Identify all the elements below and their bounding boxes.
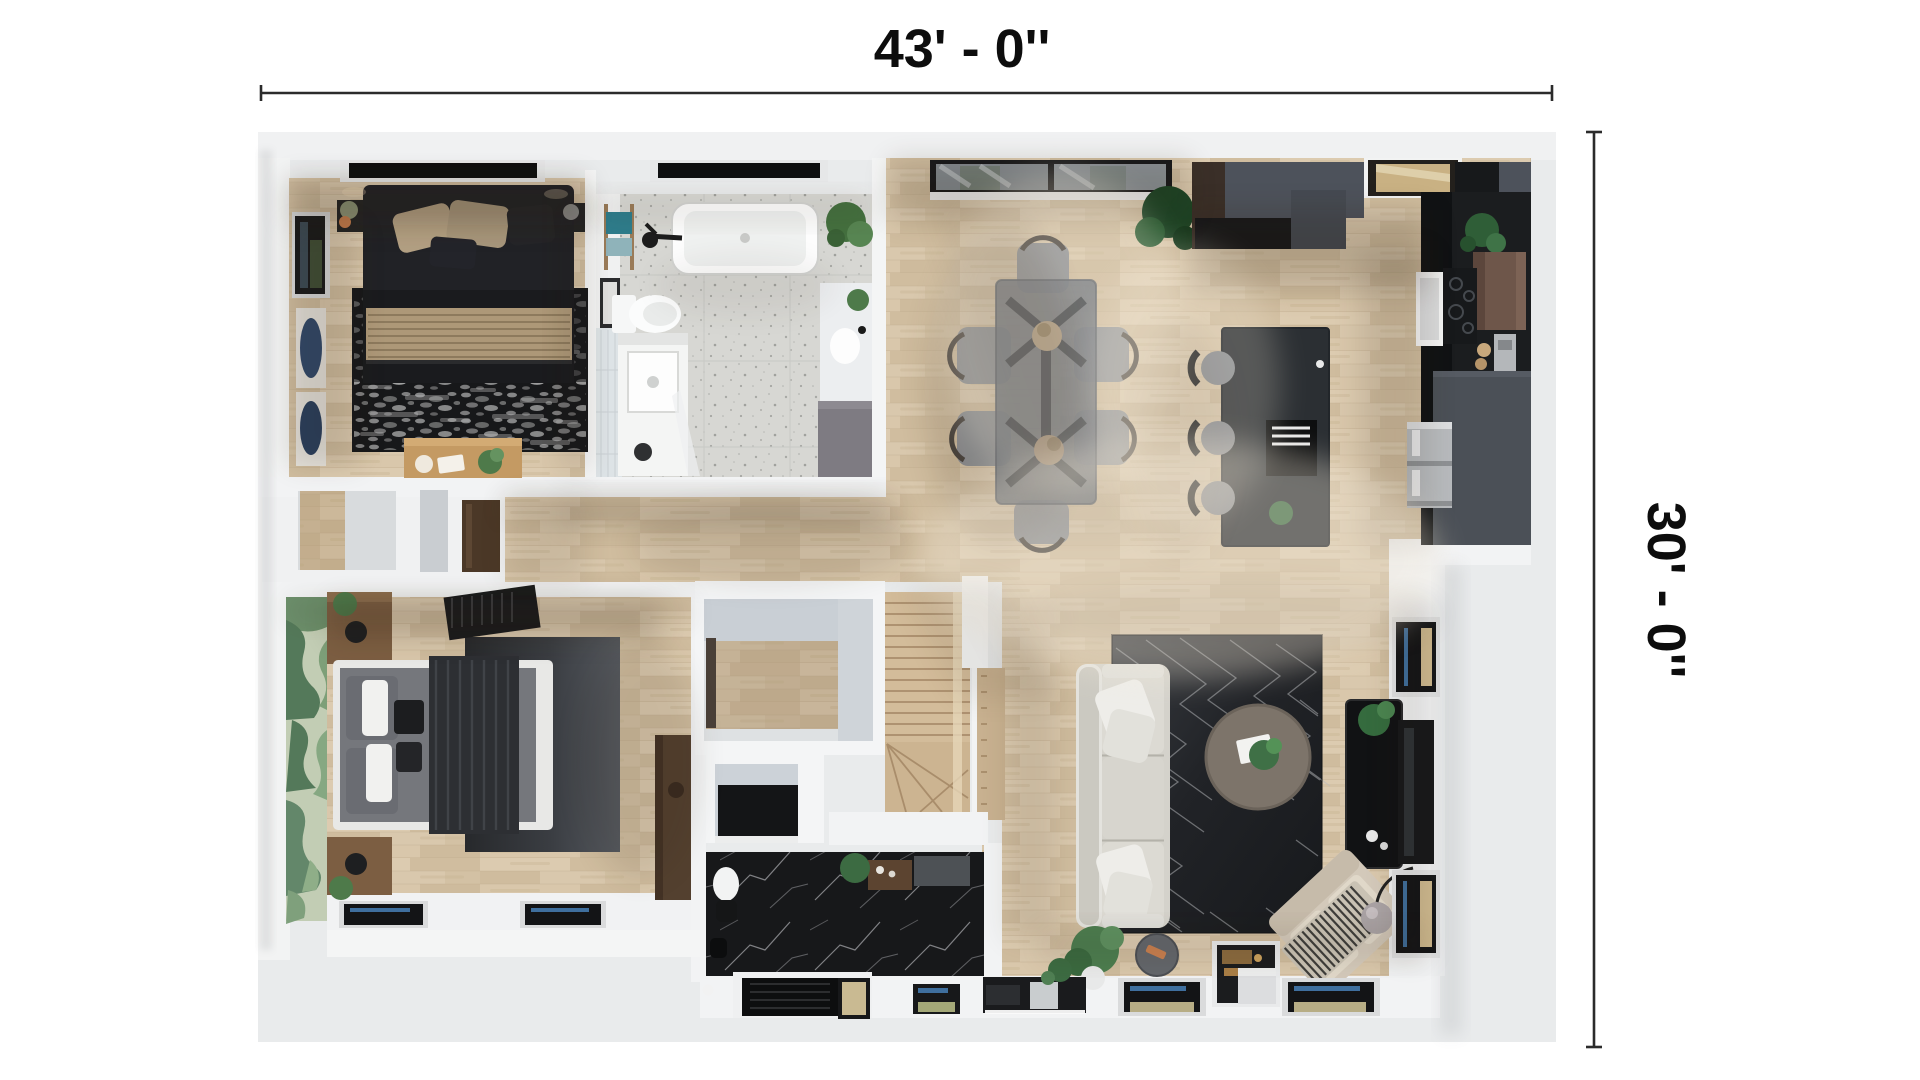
svg-text:30' - 0'': 30' - 0'' — [1636, 502, 1696, 679]
svg-text:43' - 0'': 43' - 0'' — [874, 19, 1051, 79]
